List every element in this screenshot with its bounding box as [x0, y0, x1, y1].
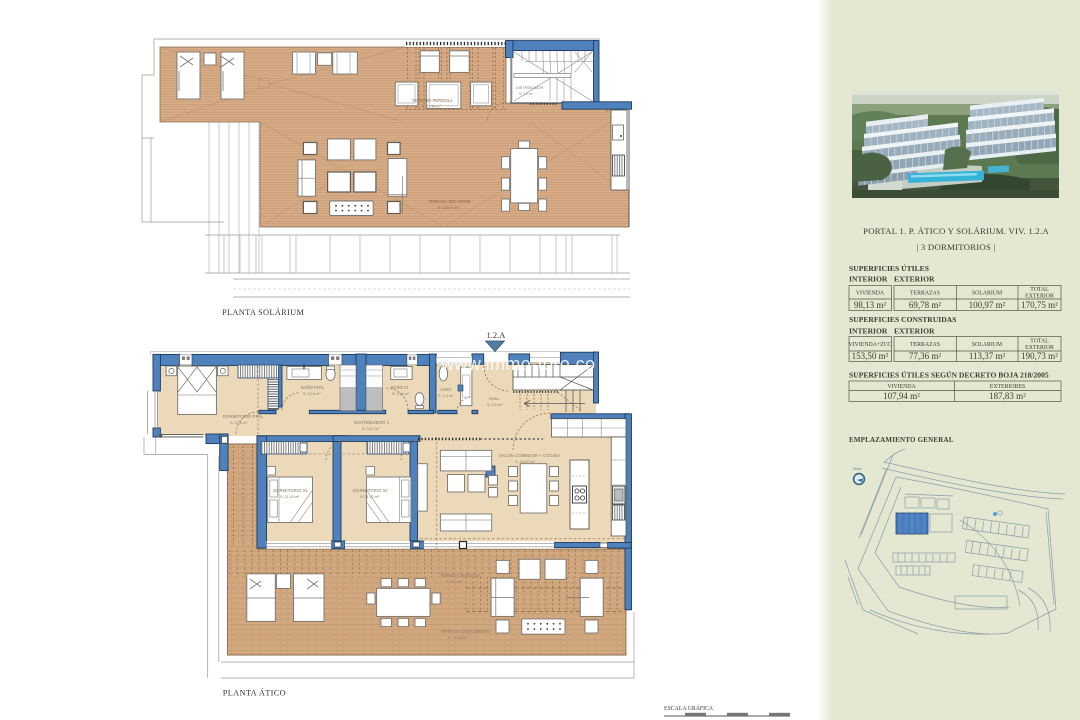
svg-text:EXTERIOR: EXTERIOR: [1025, 294, 1054, 300]
svg-text:S: 8,2 m²: S: 8,2 m²: [446, 580, 462, 584]
svg-text:DORMITORIO 01: DORMITORIO 01: [273, 488, 308, 493]
svg-text:TERRAZAS: TERRAZAS: [910, 342, 940, 348]
svg-text:TERRAZA DESCUBIERTA: TERRAZA DESCUBIERTA: [441, 629, 491, 634]
svg-text:EMPLAZAMIENTO GENERAL: EMPLAZAMIENTO GENERAL: [849, 436, 954, 444]
svg-text:INTERIOR: INTERIOR: [849, 275, 888, 284]
svg-text:ASEO: ASEO: [440, 387, 452, 392]
svg-text:VIVIENDA+ZCC: VIVIENDA+ZCC: [849, 342, 892, 348]
svg-text:S: 1,2 m²: S: 1,2 m²: [519, 92, 534, 96]
svg-text:SUPERFICIES CONSTRUIDAS: SUPERFICIES CONSTRUIDAS: [849, 315, 956, 324]
svg-text:98,13 m²: 98,13 m²: [854, 300, 887, 310]
svg-text:113,37 m²: 113,37 m²: [969, 351, 1006, 361]
svg-text:EXTERIOR: EXTERIOR: [894, 327, 935, 336]
svg-text:HALL: HALL: [489, 396, 500, 401]
svg-text:S: 45,02 m²: S: 45,02 m²: [515, 460, 535, 464]
svg-text:77,36 m²: 77,36 m²: [909, 351, 942, 361]
svg-text:S: 11,43 m²: S: 11,43 m²: [280, 495, 300, 499]
svg-text:SALÓN COMEDOR + COCINA: SALÓN COMEDOR + COCINA: [499, 453, 560, 458]
svg-text:69,78 m²: 69,78 m²: [909, 300, 942, 310]
svg-text:SOLARIUM: SOLARIUM: [972, 290, 1002, 296]
svg-text:PLANTA SOLÁRIUM: PLANTA SOLÁRIUM: [222, 307, 304, 317]
svg-text:153,50 m²: 153,50 m²: [852, 351, 889, 361]
svg-text:TERRAZAS: TERRAZAS: [910, 290, 940, 296]
svg-text:S: 2,01 m²: S: 2,01 m²: [392, 392, 410, 396]
svg-text:SUPERFICIES ÚTILES SEGÚN DECRE: SUPERFICIES ÚTILES SEGÚN DECRETO BOJA 21…: [849, 370, 1049, 380]
svg-text:TERRAZA SOLARIUM: TERRAZA SOLARIUM: [428, 199, 471, 204]
svg-text:190,73 m²: 190,73 m²: [1021, 351, 1058, 361]
svg-text:SOLARIUM: SOLARIUM: [972, 342, 1002, 348]
svg-text:DORMITORIO PPAL: DORMITORIO PPAL: [223, 414, 264, 419]
svg-text:S: 2,5 m²: S: 2,5 m²: [487, 403, 503, 407]
svg-text:| 3 DORMITORIOS |: | 3 DORMITORIOS |: [917, 242, 996, 252]
svg-text:Norte: Norte: [853, 467, 862, 471]
svg-text:S: 4,27 m²: S: 4,27 m²: [362, 427, 380, 431]
svg-text:EXTERIORES: EXTERIORES: [990, 384, 1025, 390]
svg-text:S: 11,6 m²: S: 11,6 m²: [230, 421, 248, 425]
svg-text:S: 77,36 m²: S: 77,36 m²: [448, 636, 468, 640]
svg-text:DISTRIBUIDOR 1: DISTRIBUIDOR 1: [354, 420, 390, 425]
svg-text:BAÑO 01: BAÑO 01: [391, 385, 409, 390]
svg-text:S: 11,02 m²: S: 11,02 m²: [360, 495, 380, 499]
svg-text:TERRAZA PÉRGOLA: TERRAZA PÉRGOLA: [412, 98, 453, 103]
svg-text:170,75 m²: 170,75 m²: [1021, 300, 1058, 310]
svg-text:187,83 m²: 187,83 m²: [989, 391, 1026, 401]
svg-text:TOTAL: TOTAL: [1030, 339, 1049, 345]
svg-text:EXTERIOR: EXTERIOR: [894, 275, 935, 284]
svg-text:DISTRIBUIDOR: DISTRIBUIDOR: [516, 86, 543, 90]
svg-text:100,97 m²: 100,97 m²: [969, 300, 1006, 310]
svg-text:S: 21,45 m²: S: 21,45 m²: [422, 105, 441, 109]
svg-text:PLANTA ÁTICO: PLANTA ÁTICO: [223, 688, 286, 698]
svg-text:TOTAL: TOTAL: [1030, 287, 1049, 293]
svg-text:SUPERFICIES ÚTILES: SUPERFICIES ÚTILES: [849, 263, 929, 273]
svg-text:BAÑO PPAL: BAÑO PPAL: [301, 385, 325, 390]
svg-text:S: 3,10 m²: S: 3,10 m²: [303, 392, 321, 396]
svg-text:TERRAZA PERGOLA: TERRAZA PERGOLA: [440, 573, 481, 578]
svg-text:DORMITORIO 02: DORMITORIO 02: [353, 488, 388, 493]
svg-text:ESCALA GRÁFICA: ESCALA GRÁFICA: [664, 704, 714, 712]
svg-text:S: 1,3 m²: S: 1,3 m²: [438, 394, 454, 398]
svg-text:107,94 m²: 107,94 m²: [883, 391, 920, 401]
svg-text:VIVIENDA: VIVIENDA: [856, 290, 885, 296]
svg-text:1.2.A: 1.2.A: [487, 330, 507, 340]
svg-text:www.immo-toro.co: www.immo-toro.co: [440, 354, 595, 374]
svg-text:S: 100,97 m²: S: 100,97 m²: [438, 206, 459, 210]
svg-text:VIVIENDA: VIVIENDA: [887, 384, 916, 390]
svg-text:PORTAL 1. P. ÁTICO Y SOLÁRIUM.: PORTAL 1. P. ÁTICO Y SOLÁRIUM. VIV. 1.2.…: [863, 226, 1049, 236]
svg-text:INTERIOR: INTERIOR: [849, 327, 888, 336]
